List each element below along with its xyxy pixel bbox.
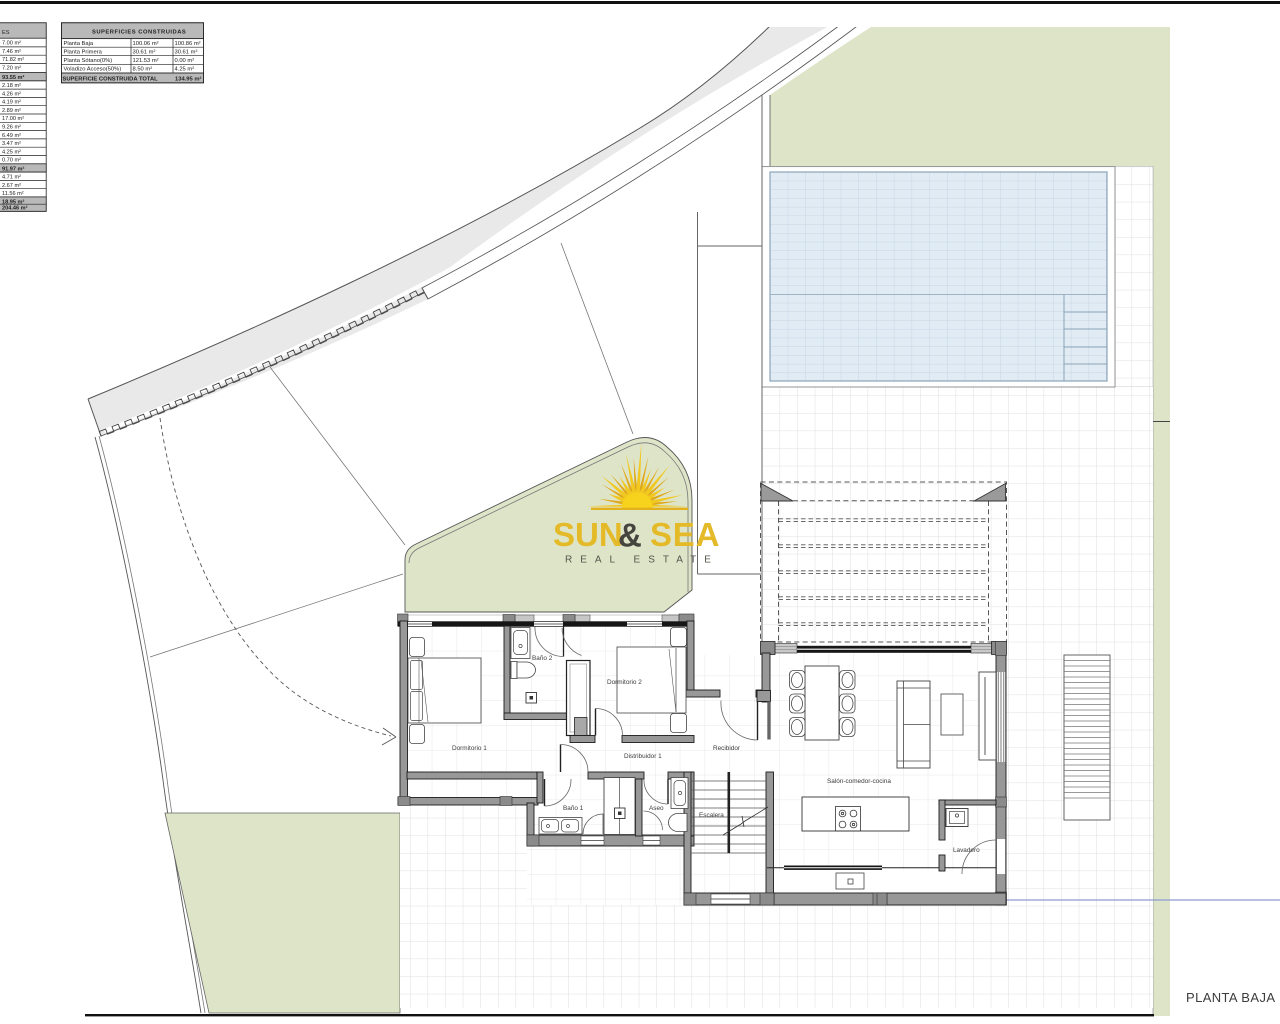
svg-text:30.61 m²: 30.61 m²	[175, 49, 198, 55]
svg-text:Distribuidor 1: Distribuidor 1	[624, 753, 662, 760]
svg-text:8.50 m²: 8.50 m²	[133, 67, 153, 73]
svg-text:Lavadero: Lavadero	[953, 847, 980, 854]
svg-text:REAL ESTATE: REAL ESTATE	[565, 555, 719, 566]
svg-text:134.95 m²: 134.95 m²	[175, 75, 201, 82]
svg-text:Planta Sótano(0%): Planta Sótano(0%)	[64, 58, 113, 64]
svg-text:6.49 m²: 6.49 m²	[2, 133, 21, 139]
svg-text:ES: ES	[2, 30, 10, 36]
svg-text:Escalera: Escalera	[699, 812, 724, 819]
svg-text:SUN: SUN	[553, 516, 623, 553]
svg-text:100.06 m²: 100.06 m²	[133, 41, 159, 47]
svg-text:Baño 2: Baño 2	[532, 655, 553, 662]
svg-text:4.19 m²: 4.19 m²	[2, 100, 21, 106]
svg-text:9.26 m²: 9.26 m²	[2, 125, 21, 131]
svg-text:Salón-comedor-cocina: Salón-comedor-cocina	[827, 778, 891, 785]
svg-text:PLANTA BAJA: PLANTA BAJA	[1186, 990, 1275, 1005]
svg-text:30.61 m²: 30.61 m²	[133, 49, 156, 55]
svg-text:71.82 m²: 71.82 m²	[2, 57, 24, 63]
svg-text:0.70 m²: 0.70 m²	[2, 158, 21, 164]
svg-text:&: &	[618, 517, 642, 554]
svg-text:Dormitorio 2: Dormitorio 2	[607, 679, 642, 686]
svg-text:4.25 m²: 4.25 m²	[2, 149, 21, 155]
svg-text:121.53 m²: 121.53 m²	[133, 58, 159, 64]
svg-text:4.25 m²: 4.25 m²	[175, 67, 195, 73]
svg-text:91.97 m²: 91.97 m²	[2, 165, 25, 172]
svg-text:SUPERFICIES CONSTRUIDAS: SUPERFICIES CONSTRUIDAS	[92, 30, 186, 36]
svg-text:0.00 m²: 0.00 m²	[175, 58, 195, 64]
svg-text:4.26 m²: 4.26 m²	[2, 91, 21, 97]
svg-text:11.56 m²: 11.56 m²	[2, 191, 24, 197]
svg-text:Voladizo Acceso(50%): Voladizo Acceso(50%)	[64, 67, 122, 73]
svg-text:18.95 m²: 18.95 m²	[2, 198, 25, 205]
svg-text:SEA: SEA	[650, 516, 720, 553]
svg-text:7.00 m²: 7.00 m²	[2, 41, 21, 47]
svg-text:3.47 m²: 3.47 m²	[2, 141, 21, 147]
svg-text:Recibidor: Recibidor	[713, 745, 741, 752]
svg-text:Dormitorio 1: Dormitorio 1	[452, 745, 487, 752]
svg-text:204.46 m²: 204.46 m²	[2, 205, 28, 212]
svg-text:7.20 m²: 7.20 m²	[2, 65, 21, 71]
svg-text:17.00 m²: 17.00 m²	[2, 116, 24, 122]
svg-text:7.46 m²: 7.46 m²	[2, 49, 21, 55]
svg-text:Aseo: Aseo	[649, 805, 664, 812]
svg-text:SUPERFICIE CONSTRUIDA TOTAL: SUPERFICIE CONSTRUIDA TOTAL	[63, 76, 159, 82]
svg-text:100.86 m²: 100.86 m²	[175, 41, 201, 47]
svg-text:93.55 m²: 93.55 m²	[2, 74, 25, 81]
svg-text:4.71 m²: 4.71 m²	[2, 175, 21, 181]
svg-text:Planta Baja: Planta Baja	[64, 41, 94, 47]
svg-text:Baño 1: Baño 1	[563, 805, 584, 812]
svg-text:2.89 m²: 2.89 m²	[2, 108, 21, 114]
svg-text:2.67 m²: 2.67 m²	[2, 183, 21, 189]
svg-text:2.18 m²: 2.18 m²	[2, 83, 21, 89]
svg-text:Planta Primera: Planta Primera	[64, 49, 103, 55]
